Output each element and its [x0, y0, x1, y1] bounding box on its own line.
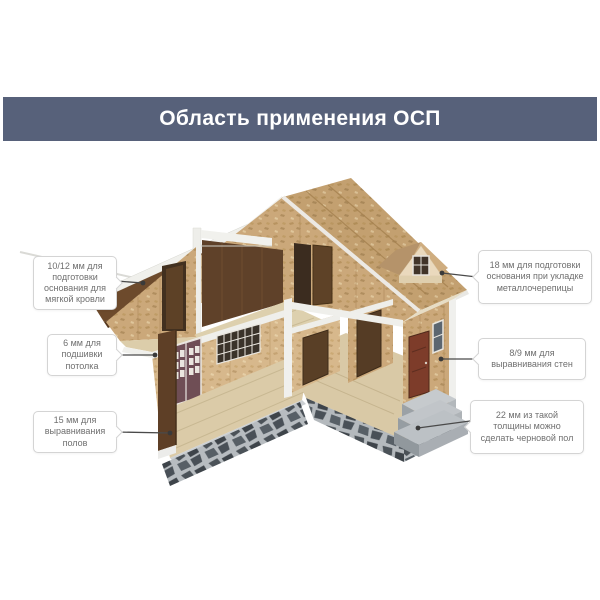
- corner-post-inner: [284, 298, 292, 398]
- dormer-window: [413, 256, 429, 275]
- callout-subfloor-text: 22 мм из такой толщины можно сделать чер…: [477, 410, 577, 444]
- page-title: Область применения ОСП: [159, 107, 440, 131]
- gable-door: [166, 265, 183, 329]
- callout-roof-metal-text: 18 мм для подготовки основания при уклад…: [485, 260, 585, 294]
- upper-door: [313, 245, 332, 305]
- upper-door-opening: [294, 243, 311, 305]
- callout-floor-leveling-text: 15 мм для выравнивания полов: [40, 415, 110, 449]
- entrance-door: [409, 331, 429, 398]
- callout-subfloor: 22 мм из такой толщины можно сделать чер…: [470, 400, 584, 454]
- right-window: [433, 320, 443, 353]
- callout-wall-leveling-text: 8/9 мм для выравнивания стен: [485, 348, 579, 371]
- callout-wall-leveling: 8/9 мм для выравнивания стен: [478, 338, 586, 380]
- title-banner: Область применения ОСП: [3, 97, 597, 141]
- callout-roof-metal: 18 мм для подготовки основания при уклад…: [478, 250, 592, 304]
- callout-ceiling-lining: 6 мм для подшивки потолка: [47, 334, 117, 376]
- callout-roof-soft-text: 10/12 мм для подготовки основания для мя…: [40, 261, 110, 306]
- callout-roof-soft: 10/12 мм для подготовки основания для мя…: [33, 256, 117, 310]
- callout-floor-leveling: 15 мм для выравнивания полов: [33, 411, 117, 453]
- callout-ceiling-lining-text: 6 мм для подшивки потолка: [54, 338, 110, 372]
- left-cut-panel: [158, 330, 176, 459]
